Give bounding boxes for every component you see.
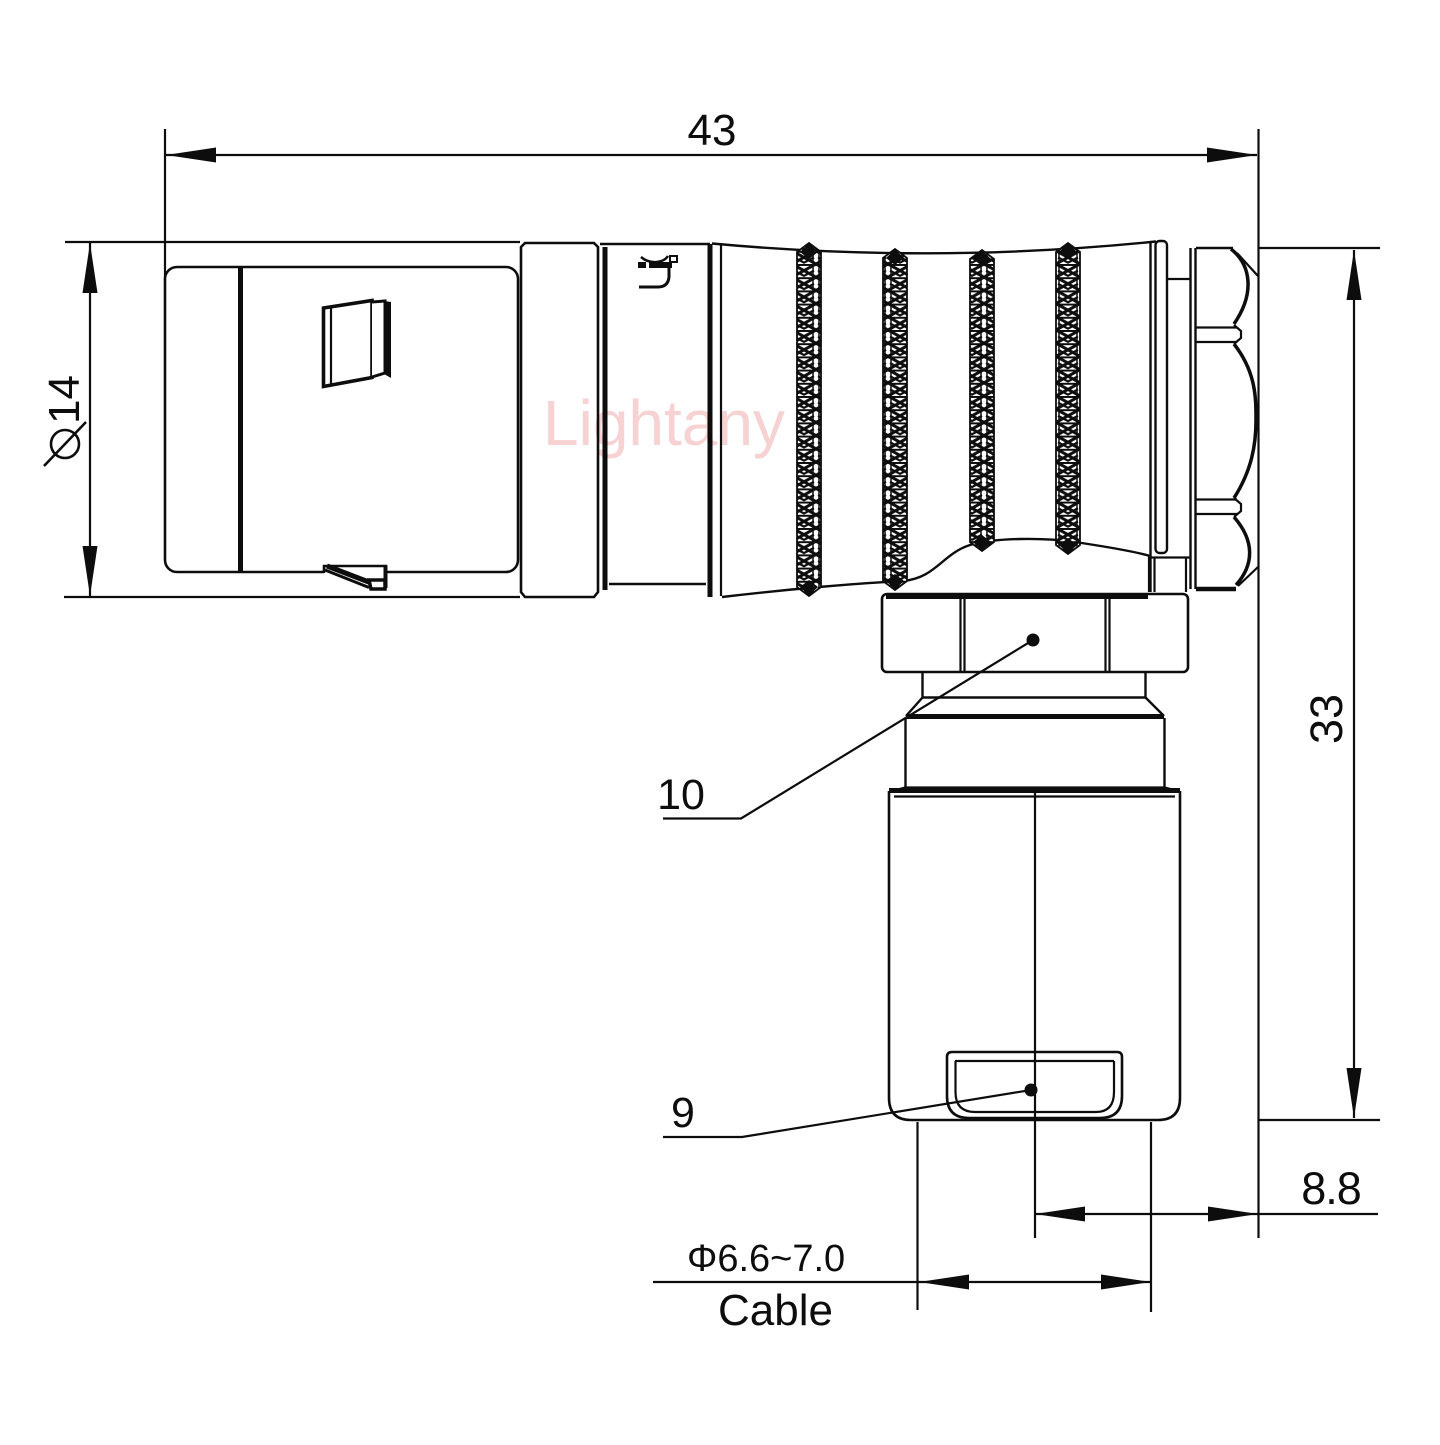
svg-text:8.8: 8.8 (1301, 1163, 1361, 1214)
svg-text:9: 9 (671, 1089, 695, 1137)
svg-text:Lightany: Lightany (543, 387, 785, 459)
svg-text:43: 43 (688, 106, 737, 155)
svg-text:Cable: Cable (718, 1286, 833, 1335)
svg-text:10: 10 (657, 771, 705, 819)
svg-text:Φ6.6~7.0: Φ6.6~7.0 (687, 1238, 845, 1280)
svg-text:14: 14 (40, 375, 89, 424)
svg-text:33: 33 (1301, 694, 1352, 744)
